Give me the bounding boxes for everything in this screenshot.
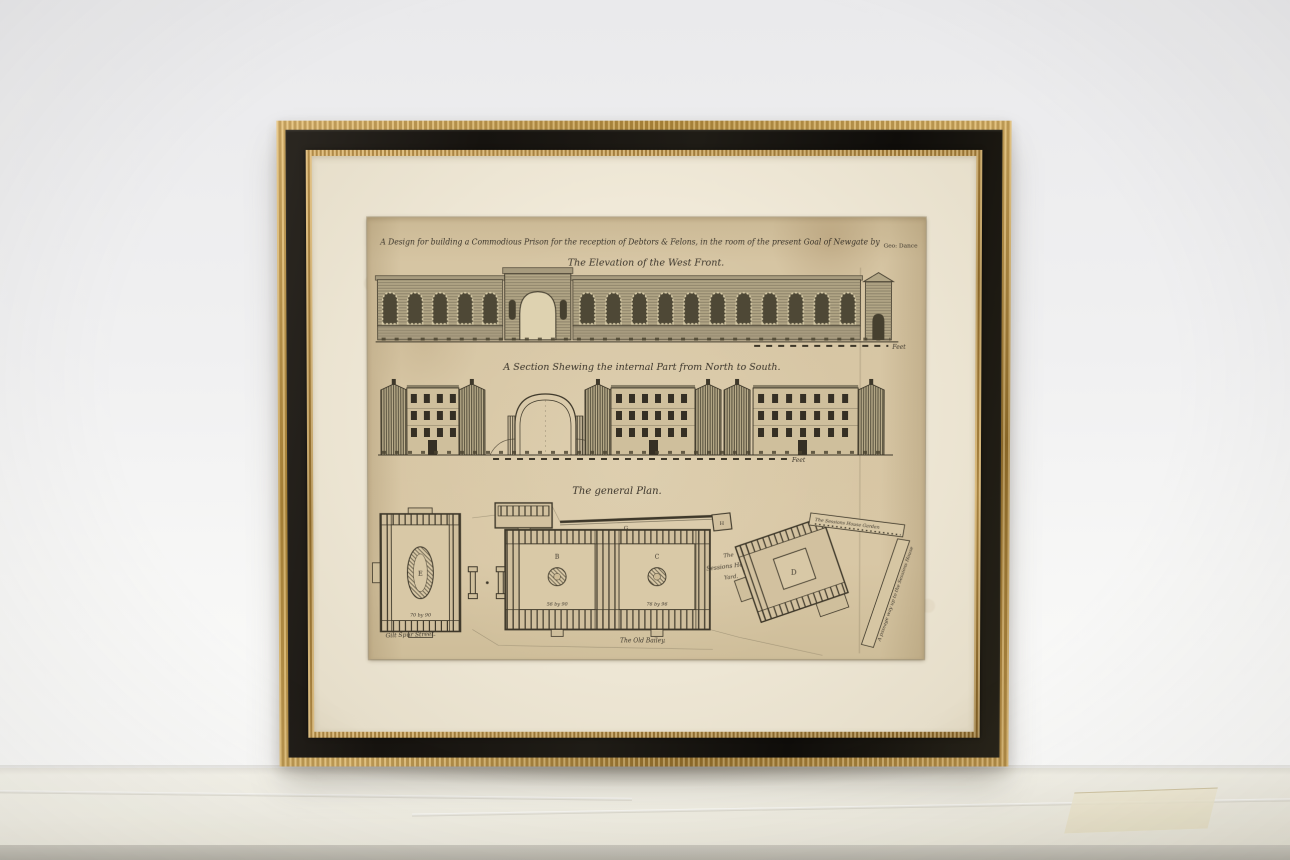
gate-piers bbox=[468, 567, 505, 599]
plan-sessions-house-block: D bbox=[724, 517, 853, 639]
section-central-arch bbox=[490, 394, 601, 455]
picture-frame-outer-gilt: A Design for building a Commodious Priso… bbox=[276, 121, 1011, 767]
plan-passage-strip: A passage way up to the Sessions House bbox=[861, 539, 915, 648]
yard-label-line-1: The bbox=[723, 552, 734, 559]
label-gilt-spur-street: Gilt Spur Street. bbox=[385, 631, 435, 640]
picture-frame-inner-gilt-fillet: A Design for building a Commodious Priso… bbox=[306, 150, 983, 738]
tissue-crease bbox=[0, 790, 632, 801]
section-scale-feet-label: Feet bbox=[791, 457, 806, 464]
plan-letter-b: B bbox=[555, 554, 560, 561]
plan-letter-h: H bbox=[720, 521, 725, 527]
engraving-artwork: A Design for building a Commodious Priso… bbox=[367, 217, 926, 659]
elevation-caption: The Elevation of the West Front. bbox=[568, 258, 724, 269]
artist-signature: Geo: Dance bbox=[884, 244, 918, 250]
table-edge bbox=[0, 845, 1290, 860]
plan-dim-c: 76 by 96 bbox=[646, 602, 667, 608]
central-gate-arch bbox=[503, 268, 573, 340]
plan-letter-c: C bbox=[655, 554, 660, 561]
label-old-bailey: The Old Bailey. bbox=[620, 637, 666, 644]
tissue-paper-fold bbox=[1064, 788, 1218, 834]
plan-caption: The general Plan. bbox=[572, 486, 661, 497]
section-caption: A Section Shewing the internal Part from… bbox=[502, 362, 780, 373]
plan-drawing: E 70 by 90 bbox=[372, 503, 915, 655]
photograph-scene: A Design for building a Commodious Priso… bbox=[0, 0, 1290, 860]
elevation-drawing: Feet bbox=[375, 268, 906, 351]
plan-chapel-block bbox=[495, 503, 552, 532]
plan-letter-e: E bbox=[418, 570, 423, 578]
plan-dim-e: 70 by 90 bbox=[410, 613, 431, 619]
right-gate-pavilion bbox=[863, 273, 893, 340]
plan-main-block: B C 56 by 90 76 by 96 bbox=[505, 530, 710, 637]
section-drawing: Feet bbox=[378, 379, 893, 464]
title-script-text: A Design for building a Commodious Priso… bbox=[379, 237, 880, 246]
engraving-print: A Design for building a Commodious Priso… bbox=[367, 217, 926, 659]
picture-frame-black-band: A Design for building a Commodious Priso… bbox=[285, 130, 1002, 758]
mat-board: A Design for building a Commodious Priso… bbox=[312, 156, 977, 732]
plan-letter-d: D bbox=[791, 568, 797, 577]
elevation-scale-feet-label: Feet bbox=[891, 344, 906, 351]
plan-dim-b: 56 by 90 bbox=[547, 602, 568, 608]
plan-left-block: E 70 by 90 bbox=[372, 508, 460, 638]
